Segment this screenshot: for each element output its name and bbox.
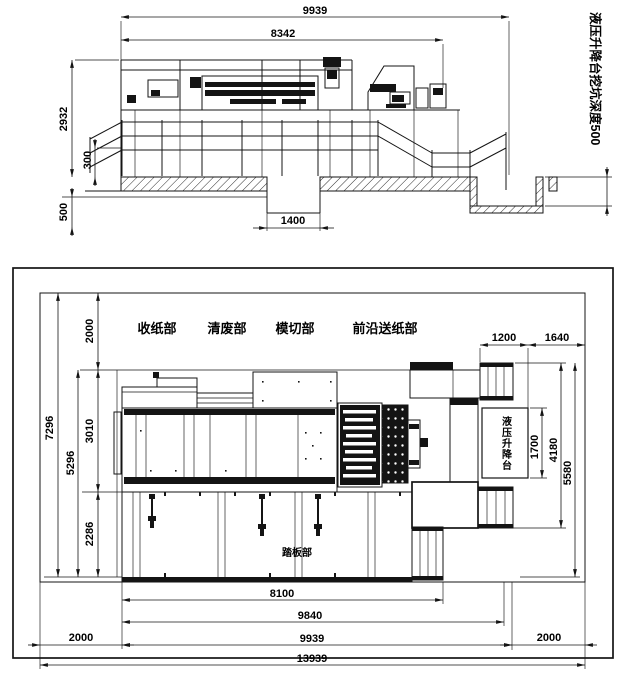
- dim-1640: 1640: [545, 332, 569, 344]
- chain-element-3: [314, 494, 322, 536]
- dim-1200: 1200: [492, 332, 516, 344]
- stripping-top-band: [197, 393, 253, 408]
- pallet-top: [480, 363, 513, 400]
- elevation-view: 9939 8342 2932 300 500 1400: [58, 5, 612, 236]
- chain-element-1: [148, 494, 156, 528]
- dim-1700: 1700: [529, 435, 541, 459]
- platform-plan: [412, 482, 478, 528]
- machine-plan-body: 踏板部: [114, 362, 528, 582]
- label-hydraulic-lift: 液压升降台: [483, 409, 527, 477]
- machine-side-body: [121, 57, 460, 177]
- dim-4180: 4180: [548, 438, 560, 462]
- diecut-top-box: [253, 372, 337, 408]
- dim-3010: 3010: [84, 419, 96, 443]
- dim-500: 500: [58, 203, 70, 221]
- dim-5296: 5296: [65, 451, 77, 475]
- floor-slab-right: [320, 177, 470, 191]
- dim-9939-plan: 9939: [300, 633, 324, 645]
- die-cut-station-plan: [338, 403, 428, 487]
- floor-slab-left: [121, 177, 267, 191]
- foundation-section: [62, 177, 557, 213]
- elevation-dimensions: 9939 8342 2932 300 500 1400: [58, 5, 612, 236]
- dim-2000-top: 2000: [84, 319, 96, 343]
- dim-2932: 2932: [58, 107, 70, 131]
- dim-2000-left: 2000: [69, 632, 93, 644]
- label-delivery-section: 收纸部: [137, 321, 176, 336]
- dim-8342: 8342: [271, 28, 295, 40]
- footboard-plan: 踏板部: [122, 492, 412, 582]
- pallet-right: [478, 487, 513, 528]
- dim-2286: 2286: [84, 522, 96, 546]
- label-stripping-section: 清废部: [207, 321, 246, 336]
- machine-layout-drawing: 9939 8342 2932 300 500 1400: [0, 0, 627, 679]
- dim-5580: 5580: [562, 461, 574, 485]
- feeder-table-plan: [382, 405, 408, 483]
- dim-1400: 1400: [281, 215, 305, 227]
- floor-pit-small: [267, 177, 320, 213]
- dim-8100: 8100: [270, 588, 294, 600]
- pit-depth-note: 液压升降台挖坑深度500: [587, 12, 606, 145]
- label-feeder-section: 前沿送纸部: [352, 321, 417, 336]
- dim-2000-right: 2000: [537, 632, 561, 644]
- label-diecut-section: 模切部: [275, 321, 314, 336]
- dim-300: 300: [82, 151, 94, 169]
- chain-element-2: [258, 494, 266, 536]
- lift-pit: [470, 177, 557, 213]
- delivery-top-box: [122, 387, 197, 408]
- dim-9939-elev: 9939: [303, 5, 327, 17]
- dim-9840: 9840: [298, 610, 322, 622]
- drawing-canvas: 9939 8342 2932 300 500 1400: [0, 0, 627, 679]
- dim-7296: 7296: [44, 416, 56, 440]
- label-footboard: 踏板部: [282, 546, 312, 559]
- dim-13939: 13939: [297, 653, 328, 665]
- pallet-bottom: [412, 527, 443, 580]
